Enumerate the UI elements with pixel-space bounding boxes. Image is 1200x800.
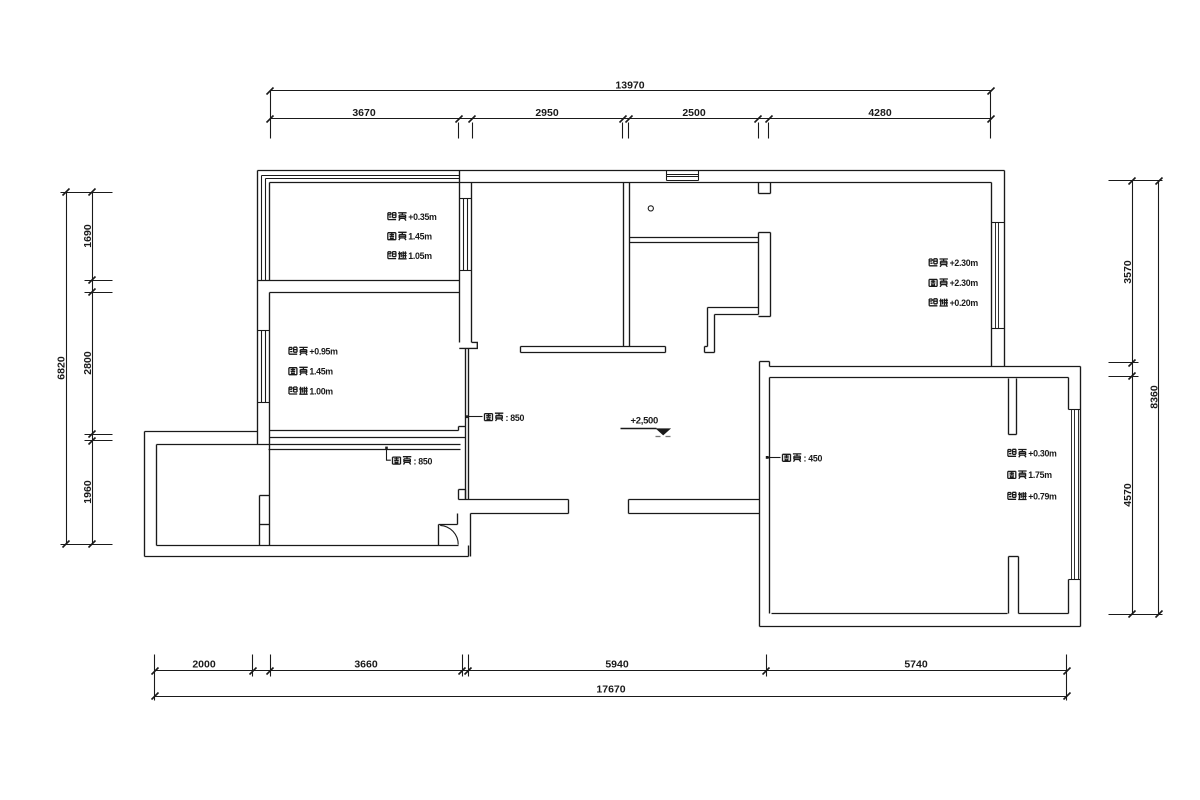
svg-text:8360: 8360 — [1149, 385, 1161, 409]
svg-text:+0.79m: +0.79m — [1028, 492, 1057, 502]
svg-text:1.45m: 1.45m — [309, 367, 333, 377]
svg-text:+0.95m: +0.95m — [309, 347, 338, 357]
svg-text:: 850: : 850 — [506, 413, 525, 423]
svg-text:2950: 2950 — [535, 107, 559, 119]
svg-text:+2.30m: +2.30m — [950, 278, 979, 288]
svg-text:+0.20m: +0.20m — [950, 298, 979, 308]
svg-text:2000: 2000 — [192, 659, 216, 671]
svg-text:1960: 1960 — [82, 480, 94, 504]
svg-text:1.00m: 1.00m — [309, 386, 333, 396]
svg-text:6820: 6820 — [56, 356, 68, 380]
svg-text:+2,500: +2,500 — [631, 416, 659, 427]
svg-text:3570: 3570 — [1122, 260, 1134, 284]
svg-text:1.05m: 1.05m — [408, 251, 432, 261]
svg-text:17670: 17670 — [596, 684, 625, 696]
svg-text:3670: 3670 — [352, 107, 376, 119]
svg-text:2500: 2500 — [682, 107, 706, 119]
svg-text:1.45m: 1.45m — [408, 232, 432, 242]
svg-text:5940: 5940 — [605, 659, 629, 671]
svg-text:: 450: : 450 — [804, 454, 823, 464]
svg-text:+2.30m: +2.30m — [950, 258, 979, 268]
svg-text:1690: 1690 — [82, 224, 94, 248]
svg-text:3660: 3660 — [354, 659, 378, 671]
svg-text:5740: 5740 — [904, 659, 928, 671]
svg-text:13970: 13970 — [615, 80, 644, 92]
svg-text:4570: 4570 — [1122, 483, 1134, 507]
svg-text:2800: 2800 — [82, 351, 94, 375]
svg-text:+0.30m: +0.30m — [1028, 449, 1057, 459]
svg-text:1.75m: 1.75m — [1028, 470, 1052, 480]
svg-text:+0.35m: +0.35m — [408, 212, 437, 222]
svg-text:: 850: : 850 — [414, 456, 433, 466]
svg-text:4280: 4280 — [868, 107, 892, 119]
